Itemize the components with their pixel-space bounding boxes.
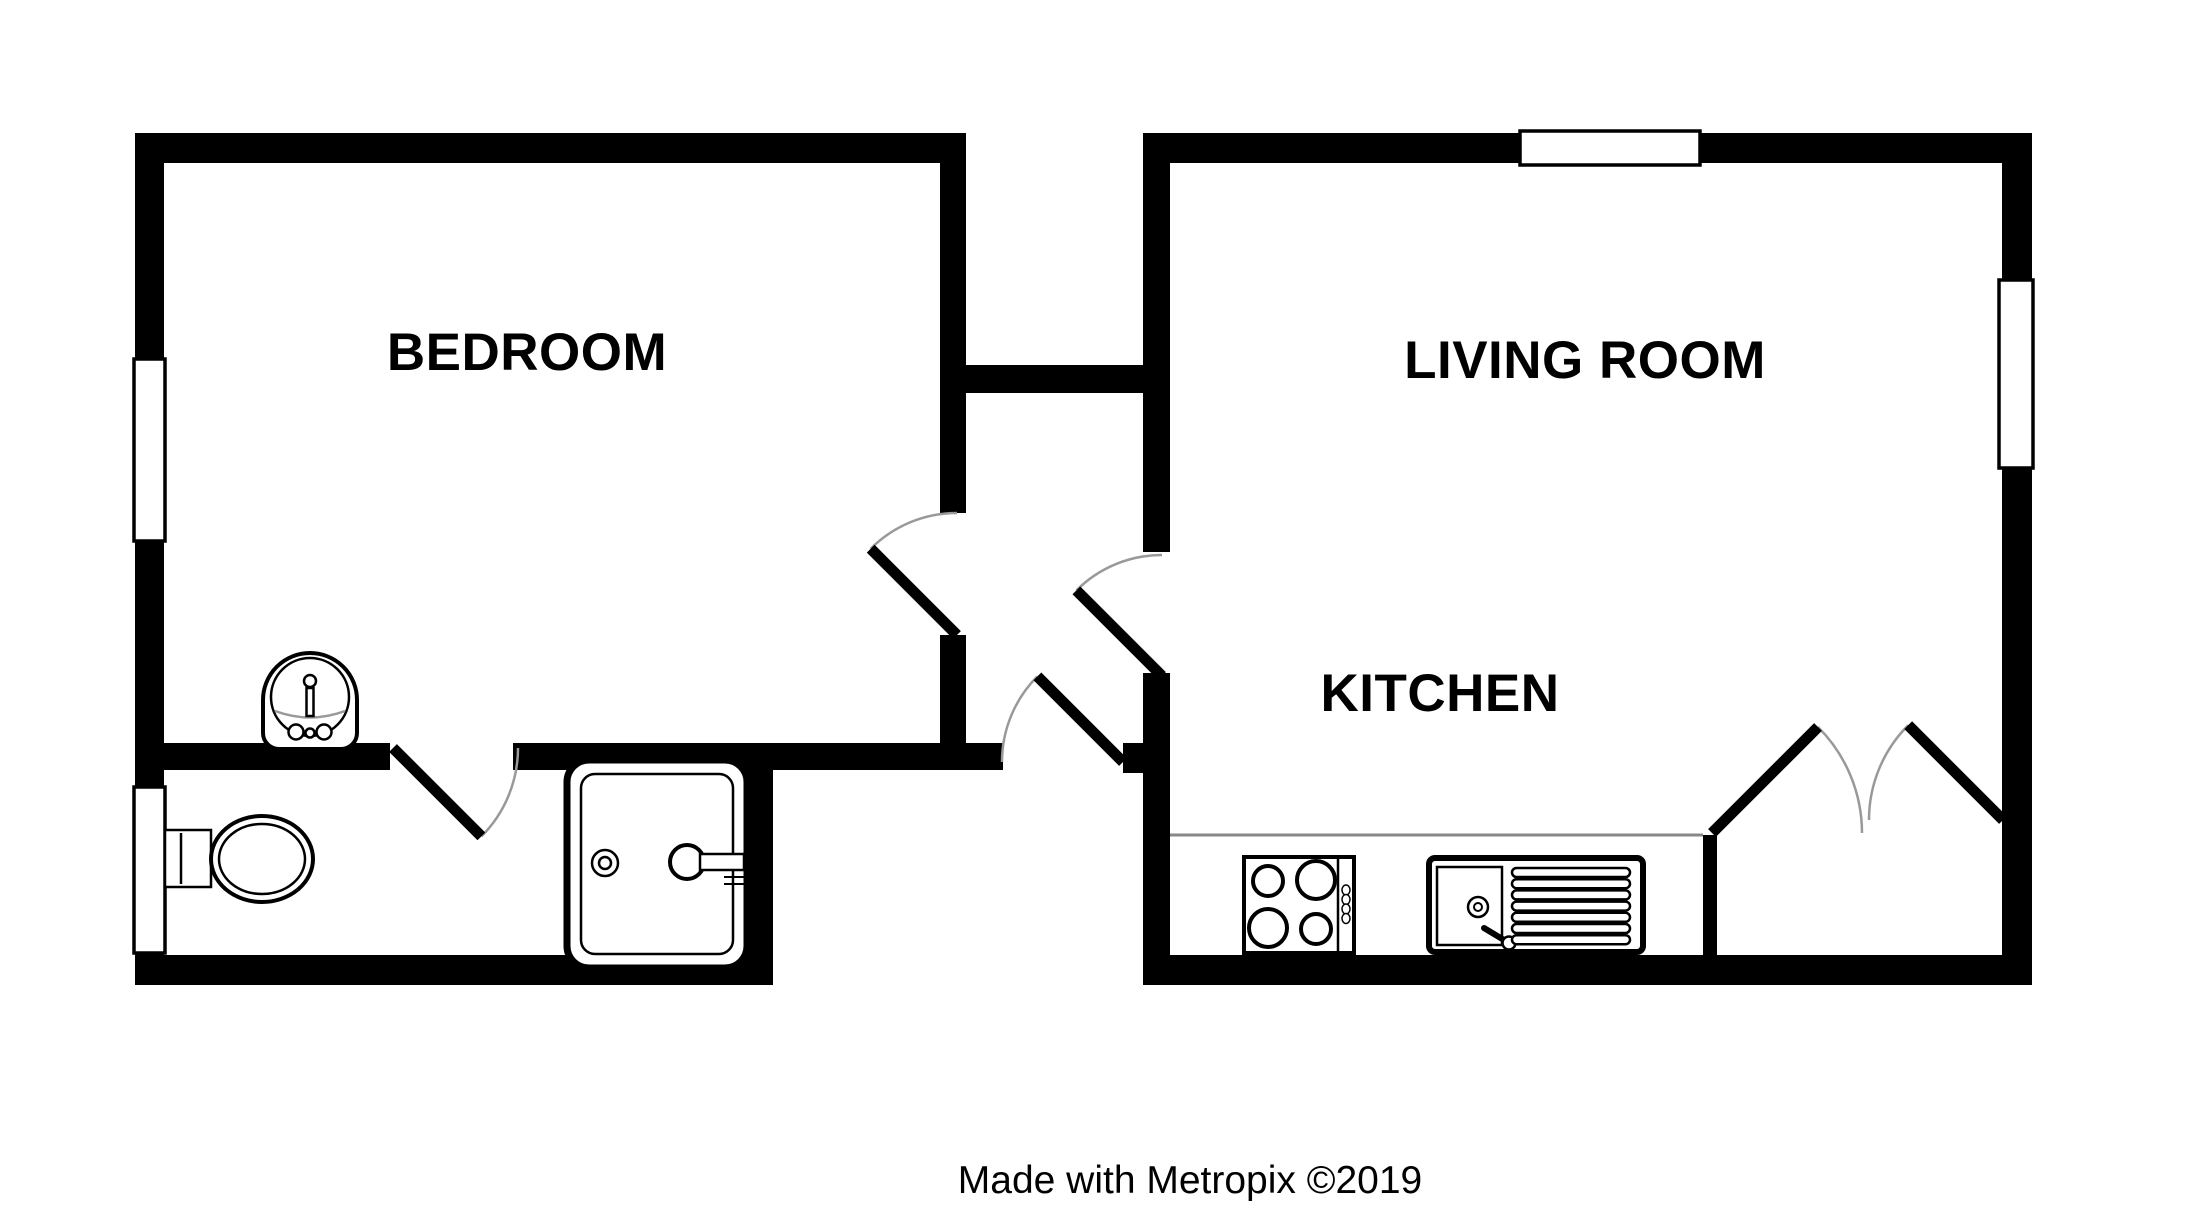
basin-tap-handle-right xyxy=(317,725,332,740)
door-swing-arc xyxy=(1869,725,1908,820)
door-swing-arc xyxy=(1076,555,1162,590)
wall-segment xyxy=(135,133,164,360)
basin-tap-stem xyxy=(307,688,314,716)
wall-segment xyxy=(135,133,966,163)
bedroom-door xyxy=(871,513,957,635)
wall-segment xyxy=(966,365,1143,393)
bath-drain-inner xyxy=(599,857,611,869)
hob-burner xyxy=(1297,861,1335,899)
wall-segment xyxy=(747,743,773,985)
wall-segment xyxy=(1700,133,2032,163)
toilet xyxy=(165,816,313,902)
bathroom-left-window xyxy=(134,787,165,953)
door-swing-arc xyxy=(481,748,518,836)
sink-drain-inner xyxy=(1474,903,1482,911)
drainer-bar xyxy=(1512,913,1630,922)
drainer-bar xyxy=(1512,924,1630,933)
french-doors xyxy=(1712,725,2003,833)
wall-segment xyxy=(2002,133,2032,282)
bath xyxy=(567,760,747,968)
wall-segment xyxy=(135,540,164,788)
floor-plan: BEDROOM LIVING ROOM KITCHEN Made with Me… xyxy=(0,0,2206,1210)
wall-segment xyxy=(1143,133,1170,552)
hob-burner xyxy=(1253,866,1283,896)
bathroom-door xyxy=(393,748,518,836)
hob-burner xyxy=(1249,909,1287,947)
toilet-bowl-inner xyxy=(219,824,305,894)
bath-spout xyxy=(700,854,744,870)
wall-segment xyxy=(1143,955,2032,985)
wall-segment xyxy=(2002,467,2032,985)
door-leaf xyxy=(393,748,481,836)
hob xyxy=(1244,857,1354,953)
drainer-bar xyxy=(1512,868,1630,877)
living-room-top-window xyxy=(1520,131,1700,165)
watermark-caption: Made with Metropix ©2019 xyxy=(958,1159,1422,1202)
door-leaf xyxy=(1037,676,1123,762)
door-leaf xyxy=(1712,727,1818,833)
walls xyxy=(135,133,2032,985)
hob-knob xyxy=(1342,885,1350,895)
hob-burner xyxy=(1301,914,1331,944)
drainer-bar xyxy=(1512,890,1630,899)
wall-segment xyxy=(1143,673,1170,955)
wall-segment xyxy=(1123,743,1170,773)
windows xyxy=(134,131,2033,953)
sink-drainer-unit xyxy=(1429,858,1643,952)
bedroom-label: BEDROOM xyxy=(387,323,667,382)
hob-knob xyxy=(1342,914,1350,924)
basin-spout xyxy=(306,729,315,738)
basin-tap xyxy=(304,675,316,687)
drainer-bar xyxy=(1512,935,1630,944)
drainer-bar xyxy=(1512,902,1630,911)
door-leaf xyxy=(871,549,957,635)
entrance-door xyxy=(1002,676,1123,762)
living-room-door xyxy=(1076,555,1162,676)
door-leaf xyxy=(1076,590,1162,676)
door-swing-arc xyxy=(1818,727,1862,833)
hob-knob xyxy=(1342,904,1350,914)
wall-segment xyxy=(940,635,966,743)
door-swing-arc xyxy=(1002,676,1037,762)
living-room-right-window xyxy=(1999,280,2033,468)
bedroom-left-window xyxy=(134,359,165,541)
wash-basin xyxy=(263,653,357,749)
wall-segment xyxy=(1143,133,1520,163)
wall-segment xyxy=(1703,835,1717,955)
living-room-label: LIVING ROOM xyxy=(1404,331,1766,390)
wall-segment xyxy=(940,133,966,513)
toilet-cistern xyxy=(165,830,211,887)
hob-knob xyxy=(1342,895,1350,905)
kitchen-fixtures xyxy=(1170,835,1703,953)
door-swing-arc xyxy=(871,513,957,549)
door-leaf xyxy=(1908,725,2003,820)
basin-tap-handle-left xyxy=(289,725,304,740)
kitchen-label: KITCHEN xyxy=(1320,664,1559,723)
drainer-bar xyxy=(1512,879,1630,888)
